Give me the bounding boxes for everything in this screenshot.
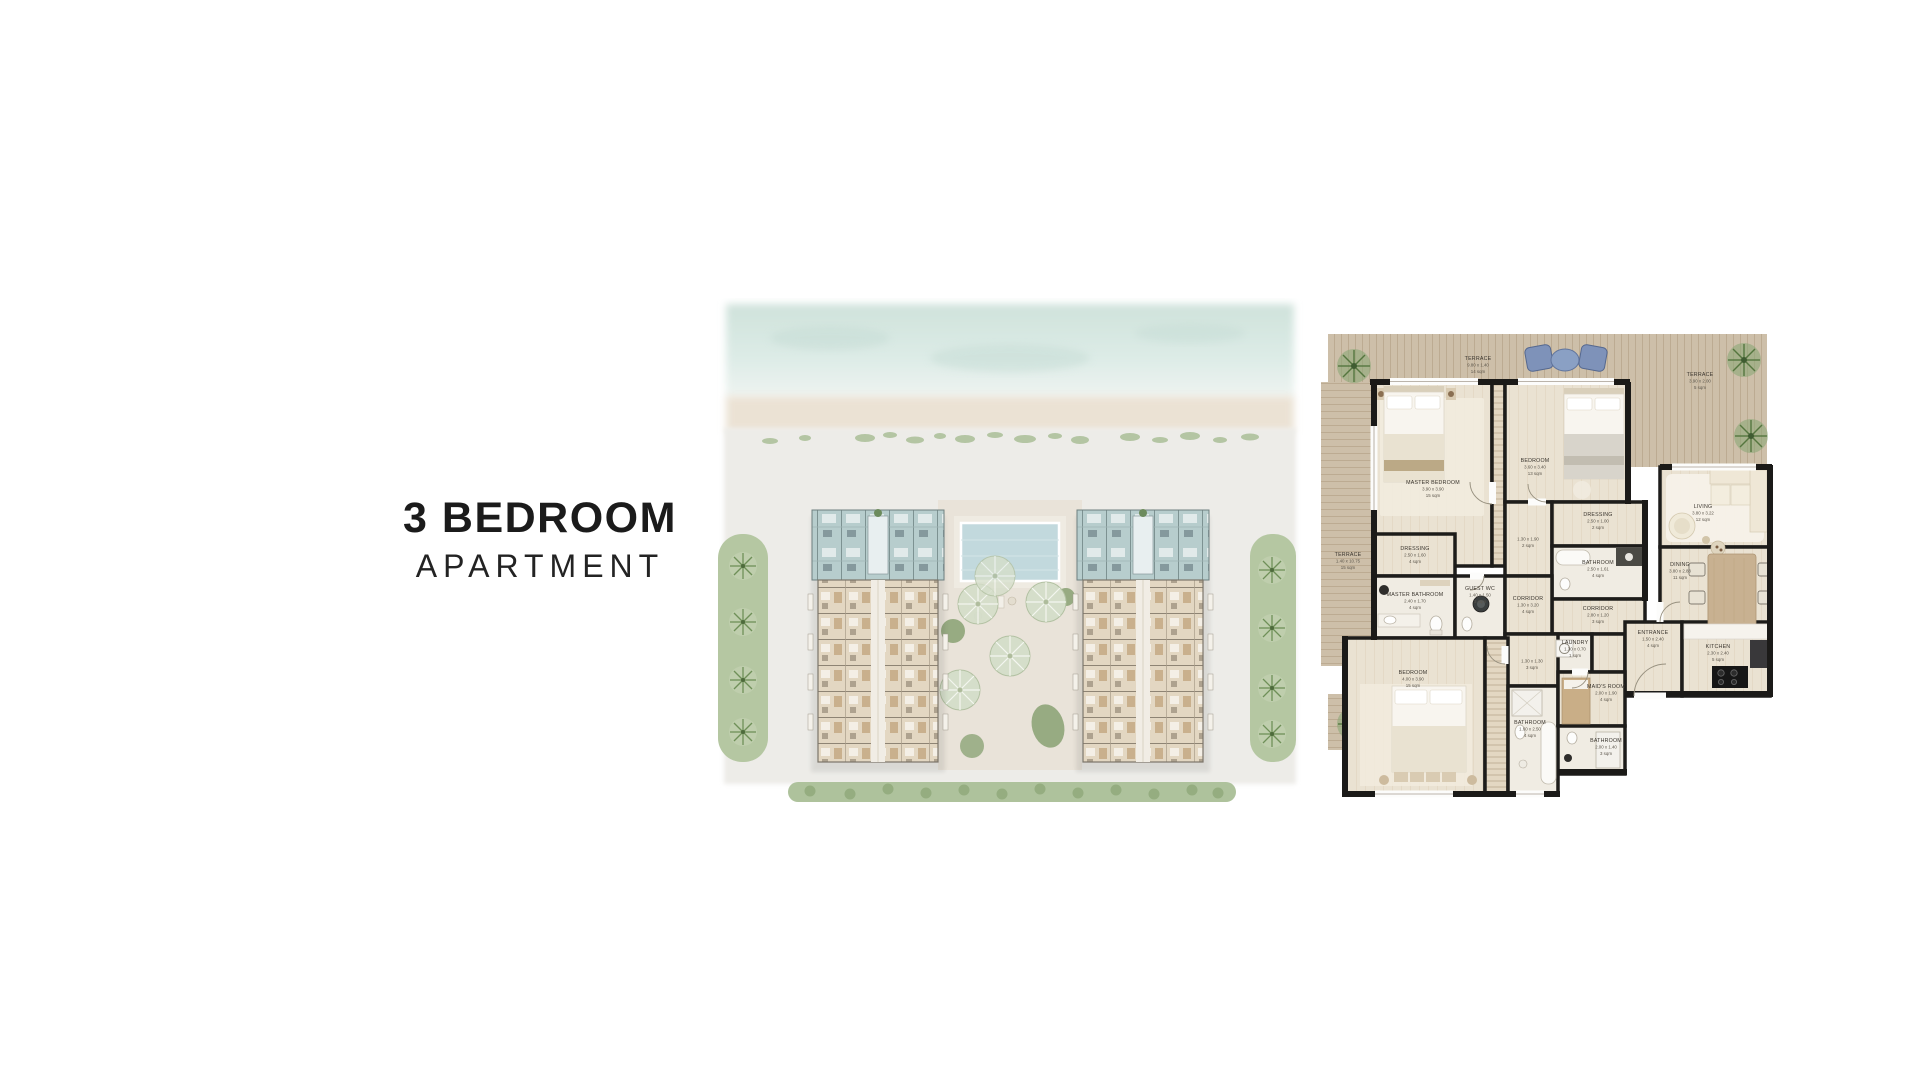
closet-master (1492, 382, 1505, 566)
svg-text:4 sqm: 4 sqm (1600, 697, 1612, 702)
svg-text:3 sqm: 3 sqm (1600, 751, 1612, 756)
svg-text:1.40 x 1.50: 1.40 x 1.50 (1469, 593, 1491, 598)
svg-text:4 sqm: 4 sqm (1522, 609, 1534, 614)
svg-text:13 sqm: 13 sqm (1528, 471, 1543, 476)
svg-text:2.30 x 2.40: 2.30 x 2.40 (1707, 651, 1729, 656)
plant-icon (1734, 419, 1768, 453)
svg-text:MASTER BATHROOM: MASTER BATHROOM (1387, 592, 1444, 598)
svg-text:CORRIDOR: CORRIDOR (1513, 596, 1543, 602)
svg-text:TERRACE: TERRACE (1687, 372, 1714, 378)
svg-text:4 sqm: 4 sqm (1592, 573, 1604, 578)
svg-text:1.50 x 2.40: 1.50 x 2.40 (1642, 637, 1664, 642)
svg-text:3.90 x 3.90: 3.90 x 3.90 (1422, 487, 1444, 492)
svg-text:MASTER BEDROOM: MASTER BEDROOM (1406, 480, 1460, 486)
plant-icon (1337, 349, 1371, 383)
svg-text:3.80 x 2.88: 3.80 x 2.88 (1669, 569, 1691, 574)
plan-title-line1: 3 BEDROOM (398, 496, 682, 541)
svg-text:BEDROOM: BEDROOM (1399, 670, 1428, 676)
svg-text:12 sqm: 12 sqm (1696, 517, 1711, 522)
svg-text:2.50 x 1.00: 2.50 x 1.00 (1587, 519, 1609, 524)
svg-text:BATHROOM: BATHROOM (1590, 738, 1622, 744)
svg-text:BATHROOM: BATHROOM (1514, 720, 1546, 726)
svg-text:2.50 x 1.60: 2.50 x 1.60 (1404, 553, 1426, 558)
svg-text:ENTRANCE: ENTRANCE (1638, 630, 1669, 636)
plan-title-line2: APARTMENT (398, 548, 682, 585)
svg-text:LAUNDRY: LAUNDRY (1562, 640, 1589, 646)
svg-text:2 sqm: 2 sqm (1592, 525, 1604, 530)
svg-text:DINING: DINING (1670, 562, 1690, 568)
svg-text:4.00 x 3.90: 4.00 x 3.90 (1402, 677, 1424, 682)
building-right (1073, 509, 1213, 772)
svg-text:MAID'S ROOM: MAID'S ROOM (1587, 684, 1625, 690)
svg-text:3.80 x 3.22: 3.80 x 3.22 (1692, 511, 1714, 516)
svg-text:2.00 x 1.90: 2.00 x 1.90 (1595, 691, 1617, 696)
svg-text:3.90 x 2.00: 3.90 x 2.00 (1689, 379, 1711, 384)
svg-text:9.80 x 1.40: 9.80 x 1.40 (1467, 363, 1489, 368)
svg-text:DRESSING: DRESSING (1400, 546, 1429, 552)
svg-text:KITCHEN: KITCHEN (1706, 644, 1731, 650)
site-plan-illustration (710, 298, 1310, 813)
svg-text:2.40 x 1.70: 2.40 x 1.70 (1404, 599, 1426, 604)
svg-text:4 sqm: 4 sqm (1524, 733, 1536, 738)
svg-text:BATHROOM: BATHROOM (1582, 560, 1614, 566)
svg-text:11 sqm: 11 sqm (1673, 575, 1687, 580)
svg-text:3 sqm: 3 sqm (1592, 619, 1604, 624)
svg-text:BEDROOM: BEDROOM (1521, 458, 1550, 464)
svg-text:5 sqm: 5 sqm (1694, 385, 1706, 390)
apartment-floor-plan: TERRACE9.80 x 1.4014 sqm TERRACE3.90 x 2… (1320, 334, 1775, 799)
svg-text:1.40 x 10.75: 1.40 x 10.75 (1336, 559, 1361, 564)
svg-text:2.50 x 1.61: 2.50 x 1.61 (1587, 567, 1609, 572)
svg-text:15 sqm: 15 sqm (1406, 683, 1421, 688)
sea (726, 304, 1294, 398)
svg-text:15 sqm: 15 sqm (1341, 565, 1356, 570)
page: 3 BEDROOM APARTMENT (0, 0, 1920, 1080)
svg-text:2.00 x 1.40: 2.00 x 1.40 (1595, 745, 1617, 750)
svg-text:2.80 x 1.20: 2.80 x 1.20 (1587, 613, 1609, 618)
plant-icon (1727, 343, 1761, 377)
svg-text:DRESSING: DRESSING (1583, 512, 1612, 518)
svg-text:1.30 x 3.20: 1.30 x 3.20 (1517, 603, 1539, 608)
svg-text:15 sqm: 15 sqm (1426, 493, 1441, 498)
svg-text:TERRACE: TERRACE (1465, 356, 1492, 362)
plan-title: 3 BEDROOM APARTMENT (398, 496, 682, 585)
hedge-bottom (788, 782, 1236, 802)
svg-text:CORRIDOR: CORRIDOR (1583, 606, 1613, 612)
svg-text:3 sqm: 3 sqm (1474, 599, 1486, 604)
bedroom-3-bed (1360, 684, 1477, 786)
svg-text:1.30 x 1.30: 1.30 x 1.30 (1521, 659, 1543, 664)
svg-text:1.30 x 1.90: 1.30 x 1.90 (1517, 537, 1539, 542)
room-store (1592, 634, 1625, 672)
maids-bed (1562, 678, 1590, 724)
svg-text:4 sqm: 4 sqm (1409, 559, 1421, 564)
hedge-right (1250, 534, 1296, 762)
svg-text:1.60 x 2.50: 1.60 x 2.50 (1519, 727, 1541, 732)
svg-text:14 sqm: 14 sqm (1471, 369, 1486, 374)
svg-text:LIVING: LIVING (1694, 504, 1713, 510)
svg-text:3 sqm: 3 sqm (1526, 665, 1538, 670)
svg-text:3.60 x 3.40: 3.60 x 3.40 (1524, 465, 1546, 470)
hedge-left (718, 534, 768, 762)
svg-text:4 sqm: 4 sqm (1409, 605, 1421, 610)
room-dressing-bedroom (1552, 502, 1645, 546)
building-left (808, 509, 948, 772)
svg-text:4 sqm: 4 sqm (1647, 643, 1659, 648)
svg-text:1.30 x 0.70: 1.30 x 0.70 (1564, 647, 1586, 652)
svg-text:TERRACE: TERRACE (1335, 552, 1362, 558)
svg-text:5 sqm: 5 sqm (1712, 657, 1724, 662)
svg-text:1 sqm: 1 sqm (1569, 653, 1581, 658)
svg-text:2 sqm: 2 sqm (1522, 543, 1534, 548)
svg-text:GUEST WC: GUEST WC (1465, 586, 1495, 592)
